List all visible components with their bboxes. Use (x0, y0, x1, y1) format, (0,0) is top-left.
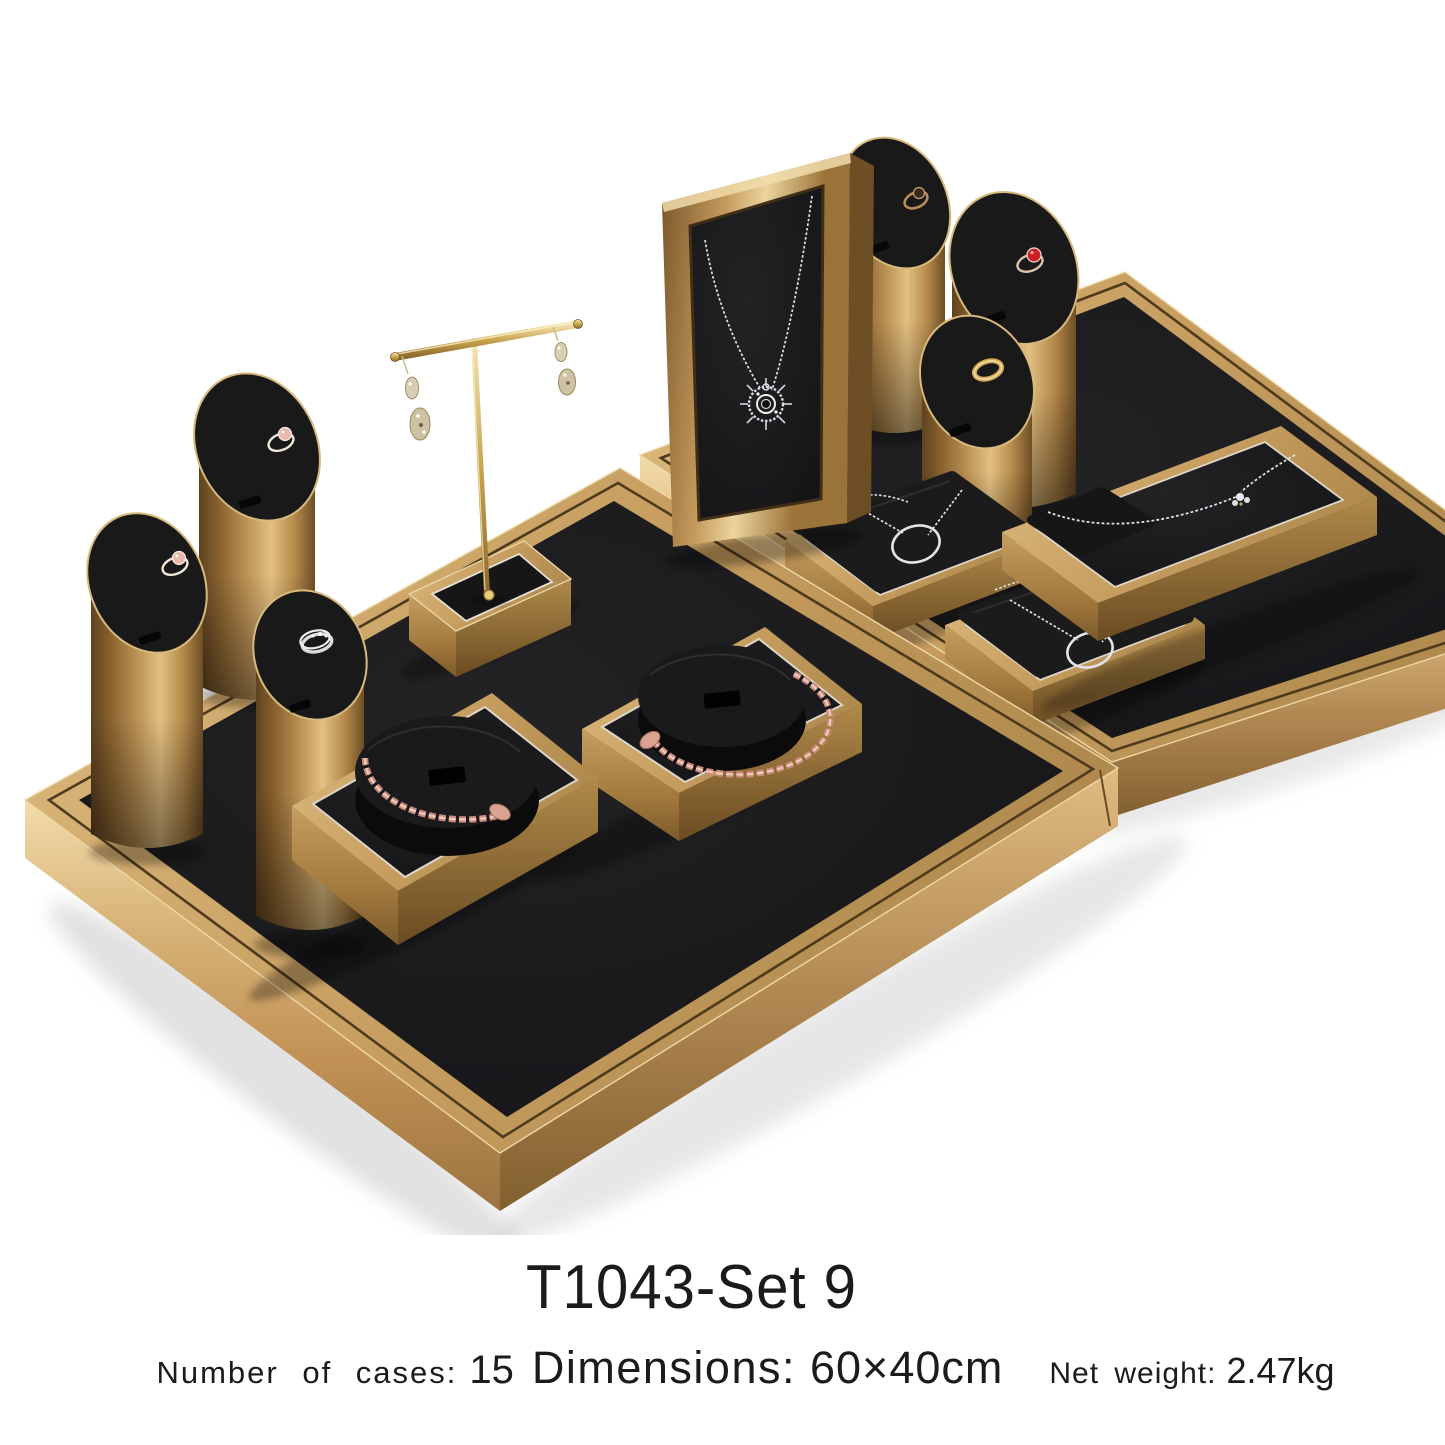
spec-net-weight-label: Net weight: (1049, 1357, 1216, 1391)
spec-net-weight: Net weight: 2.47kg (1049, 1350, 1334, 1392)
product-specs: Number of cases: 15 Dimensions: 60×40cm … (23, 1342, 1445, 1394)
product-title: T1043-Set 9 (12, 1252, 1370, 1323)
spec-dimensions-value: 60×40cm (810, 1342, 1003, 1394)
jewelry-display-photo (0, 0, 1445, 1235)
sunburst-pendant (740, 378, 792, 430)
spec-cases-label: Number of cases: (156, 1355, 457, 1391)
dangle-earring-right (553, 327, 576, 395)
spec-cases-value: 15 (469, 1348, 514, 1393)
spec-number-of-cases: Number of cases: 15 (156, 1348, 513, 1393)
product-page: T1043-Set 9 Number of cases: 15 Dimensio… (0, 0, 1445, 1445)
framed-necklace-display (662, 153, 874, 576)
dangle-earring-left (402, 356, 430, 440)
spec-net-weight-value: 2.47kg (1226, 1350, 1334, 1392)
spec-dimensions-label: Dimensions: (532, 1342, 796, 1394)
spec-dimensions: Dimensions: 60×40cm (532, 1342, 1003, 1394)
